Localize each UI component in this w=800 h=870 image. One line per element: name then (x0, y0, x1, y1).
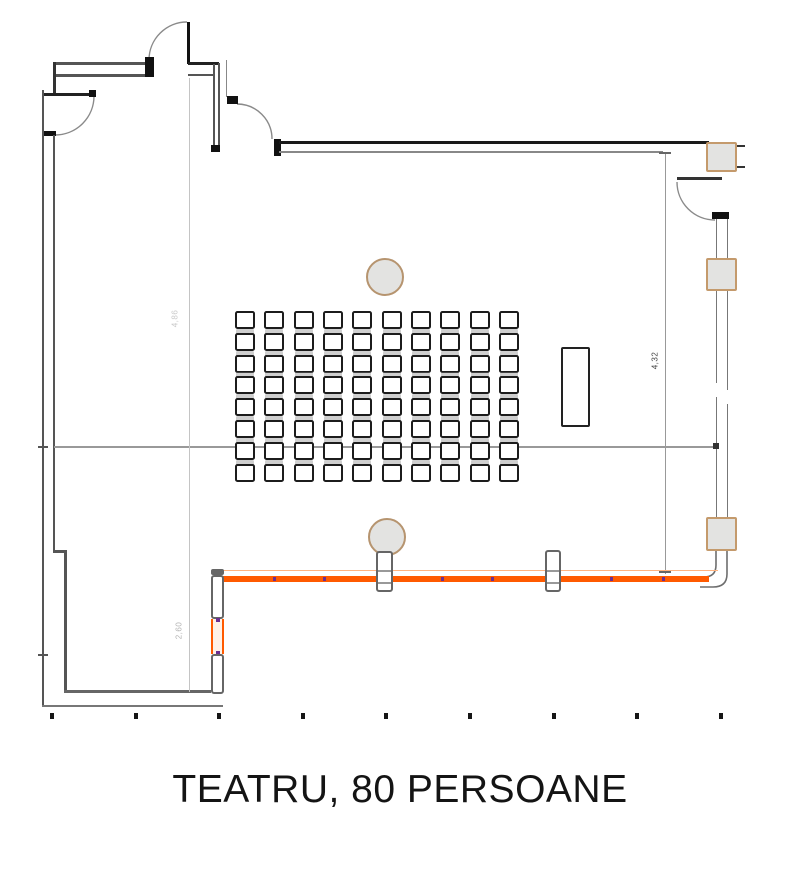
seat (235, 355, 255, 373)
wall-marker (216, 618, 220, 622)
bottom-wall-outer (42, 705, 223, 707)
seat (352, 464, 372, 482)
window-wall (727, 291, 729, 390)
door-jamb (145, 57, 154, 77)
pillar-line (547, 582, 559, 584)
wall-segment (53, 74, 148, 77)
seat (352, 311, 372, 329)
window-mullion (706, 258, 737, 291)
plan-title: TEATRU, 80 PERSOANE (0, 768, 800, 812)
window-wall (727, 219, 729, 259)
door-leaf (187, 22, 191, 64)
seat (470, 333, 490, 351)
seat (411, 398, 431, 416)
door-leaf (677, 177, 722, 181)
window-wall (716, 397, 718, 518)
seat (499, 376, 519, 394)
seat (352, 333, 372, 351)
grid-tick (468, 713, 472, 719)
seat (411, 355, 431, 373)
door-arc (149, 22, 187, 60)
wall-pillar (545, 550, 561, 592)
dimension-tick (38, 446, 48, 448)
seat (323, 376, 343, 394)
seat (294, 420, 314, 438)
door-arc (677, 182, 715, 220)
seat (264, 398, 284, 416)
seat (264, 464, 284, 482)
dimension-line (189, 78, 190, 692)
seat (264, 333, 284, 351)
seat (382, 333, 402, 351)
seat (440, 311, 460, 329)
seat (235, 420, 255, 438)
seat (352, 420, 372, 438)
dimension-label: 2,60 (174, 622, 183, 640)
orange-wall-marker (491, 577, 494, 581)
seat (499, 398, 519, 416)
seat (499, 420, 519, 438)
round-column (366, 258, 404, 296)
seat (382, 376, 402, 394)
seat (382, 311, 402, 329)
seat (470, 376, 490, 394)
wall-segment (218, 63, 220, 147)
grid-tick (384, 713, 388, 719)
seat (323, 355, 343, 373)
seat (440, 398, 460, 416)
seat (294, 333, 314, 351)
seat (382, 442, 402, 460)
orange-wall-thin (222, 570, 718, 572)
seat (411, 442, 431, 460)
wall-pillar (376, 551, 393, 592)
alcove-wall-orange (211, 619, 224, 654)
wall-segment (188, 74, 213, 77)
alcove-wall-segment (211, 575, 225, 619)
orange-wall-marker (323, 577, 326, 581)
door-leaf (43, 93, 95, 96)
seat (411, 376, 431, 394)
seat (264, 420, 284, 438)
seat-grid (235, 311, 520, 483)
orange-wall-marker (610, 577, 613, 581)
seat (382, 355, 402, 373)
door-arc (55, 96, 94, 135)
grid-tick (134, 713, 138, 719)
top-wall-inner (279, 151, 663, 153)
seat (235, 442, 255, 460)
seat (235, 376, 255, 394)
wall-segment (53, 62, 148, 65)
window-wall (716, 219, 718, 259)
seat (323, 311, 343, 329)
seat (294, 376, 314, 394)
dimension-tick (659, 152, 671, 154)
seat (352, 398, 372, 416)
seat (470, 442, 490, 460)
wall-segment (226, 60, 228, 97)
seat (411, 420, 431, 438)
seat (294, 464, 314, 482)
seat (323, 442, 343, 460)
seat (440, 420, 460, 438)
pillar-line (378, 570, 391, 572)
orange-wall (222, 576, 709, 582)
seat (440, 464, 460, 482)
seat (499, 333, 519, 351)
seat (470, 464, 490, 482)
seat (323, 398, 343, 416)
seat (440, 442, 460, 460)
door-jamb (712, 212, 729, 219)
window-wall (727, 404, 729, 518)
seat (323, 464, 343, 482)
dimension-tick (659, 571, 671, 573)
seat (235, 333, 255, 351)
wall-segment (53, 62, 56, 96)
seat (235, 311, 255, 329)
seat (352, 442, 372, 460)
window-wall-elbow (704, 550, 716, 577)
seat (294, 398, 314, 416)
seat (440, 376, 460, 394)
seat (440, 333, 460, 351)
door-jamb (89, 90, 96, 97)
outer-wall-left (42, 90, 44, 707)
inner-wall-left (53, 135, 55, 550)
door-jamb (227, 96, 238, 104)
seat (411, 464, 431, 482)
seat (382, 464, 402, 482)
dimension-label: 4,32 (650, 352, 659, 370)
seat (235, 398, 255, 416)
grid-tick (719, 713, 723, 719)
grid-tick (50, 713, 54, 719)
stage-table (561, 347, 590, 427)
seat (382, 398, 402, 416)
seat (499, 464, 519, 482)
seat (440, 355, 460, 373)
mullion-tick (737, 145, 745, 147)
window-wall (716, 291, 718, 383)
pillar-line (378, 582, 391, 584)
seat (499, 355, 519, 373)
seat (323, 420, 343, 438)
pillar-line (547, 570, 559, 572)
grid-tick (301, 713, 305, 719)
top-wall (279, 141, 709, 145)
window-mullion (706, 142, 737, 172)
seat (352, 376, 372, 394)
grid-tick (635, 713, 639, 719)
mullion-tick (737, 166, 745, 168)
seat (499, 311, 519, 329)
seat (470, 355, 490, 373)
seat (411, 311, 431, 329)
grid-tick (217, 713, 221, 719)
seat (235, 464, 255, 482)
orange-wall-marker (441, 577, 444, 581)
seat (264, 376, 284, 394)
seat (470, 398, 490, 416)
seat (470, 420, 490, 438)
dimension-line (665, 152, 666, 574)
orange-wall-marker (273, 577, 276, 581)
dimension-label: 4,86 (170, 310, 179, 328)
floor-plan-canvas: 4,86 2,60 4,32 TEATRU, 80 PERSOANE (0, 0, 800, 870)
window-mullion (706, 517, 737, 551)
orange-wall-marker (662, 577, 665, 581)
seat (264, 355, 284, 373)
seat (323, 333, 343, 351)
seat (382, 420, 402, 438)
seat (264, 311, 284, 329)
grid-tick (552, 713, 556, 719)
inner-wall-left (64, 550, 67, 692)
seat (294, 311, 314, 329)
seat (352, 355, 372, 373)
seat (264, 442, 284, 460)
seat (294, 442, 314, 460)
wall-end-cap (211, 145, 220, 152)
door-arc (237, 104, 272, 139)
wall-segment (213, 64, 215, 152)
reference-dot (713, 443, 719, 449)
seat (470, 311, 490, 329)
seat (499, 442, 519, 460)
seat (411, 333, 431, 351)
alcove-wall-segment (211, 654, 225, 694)
dimension-tick (38, 654, 48, 656)
seat (294, 355, 314, 373)
